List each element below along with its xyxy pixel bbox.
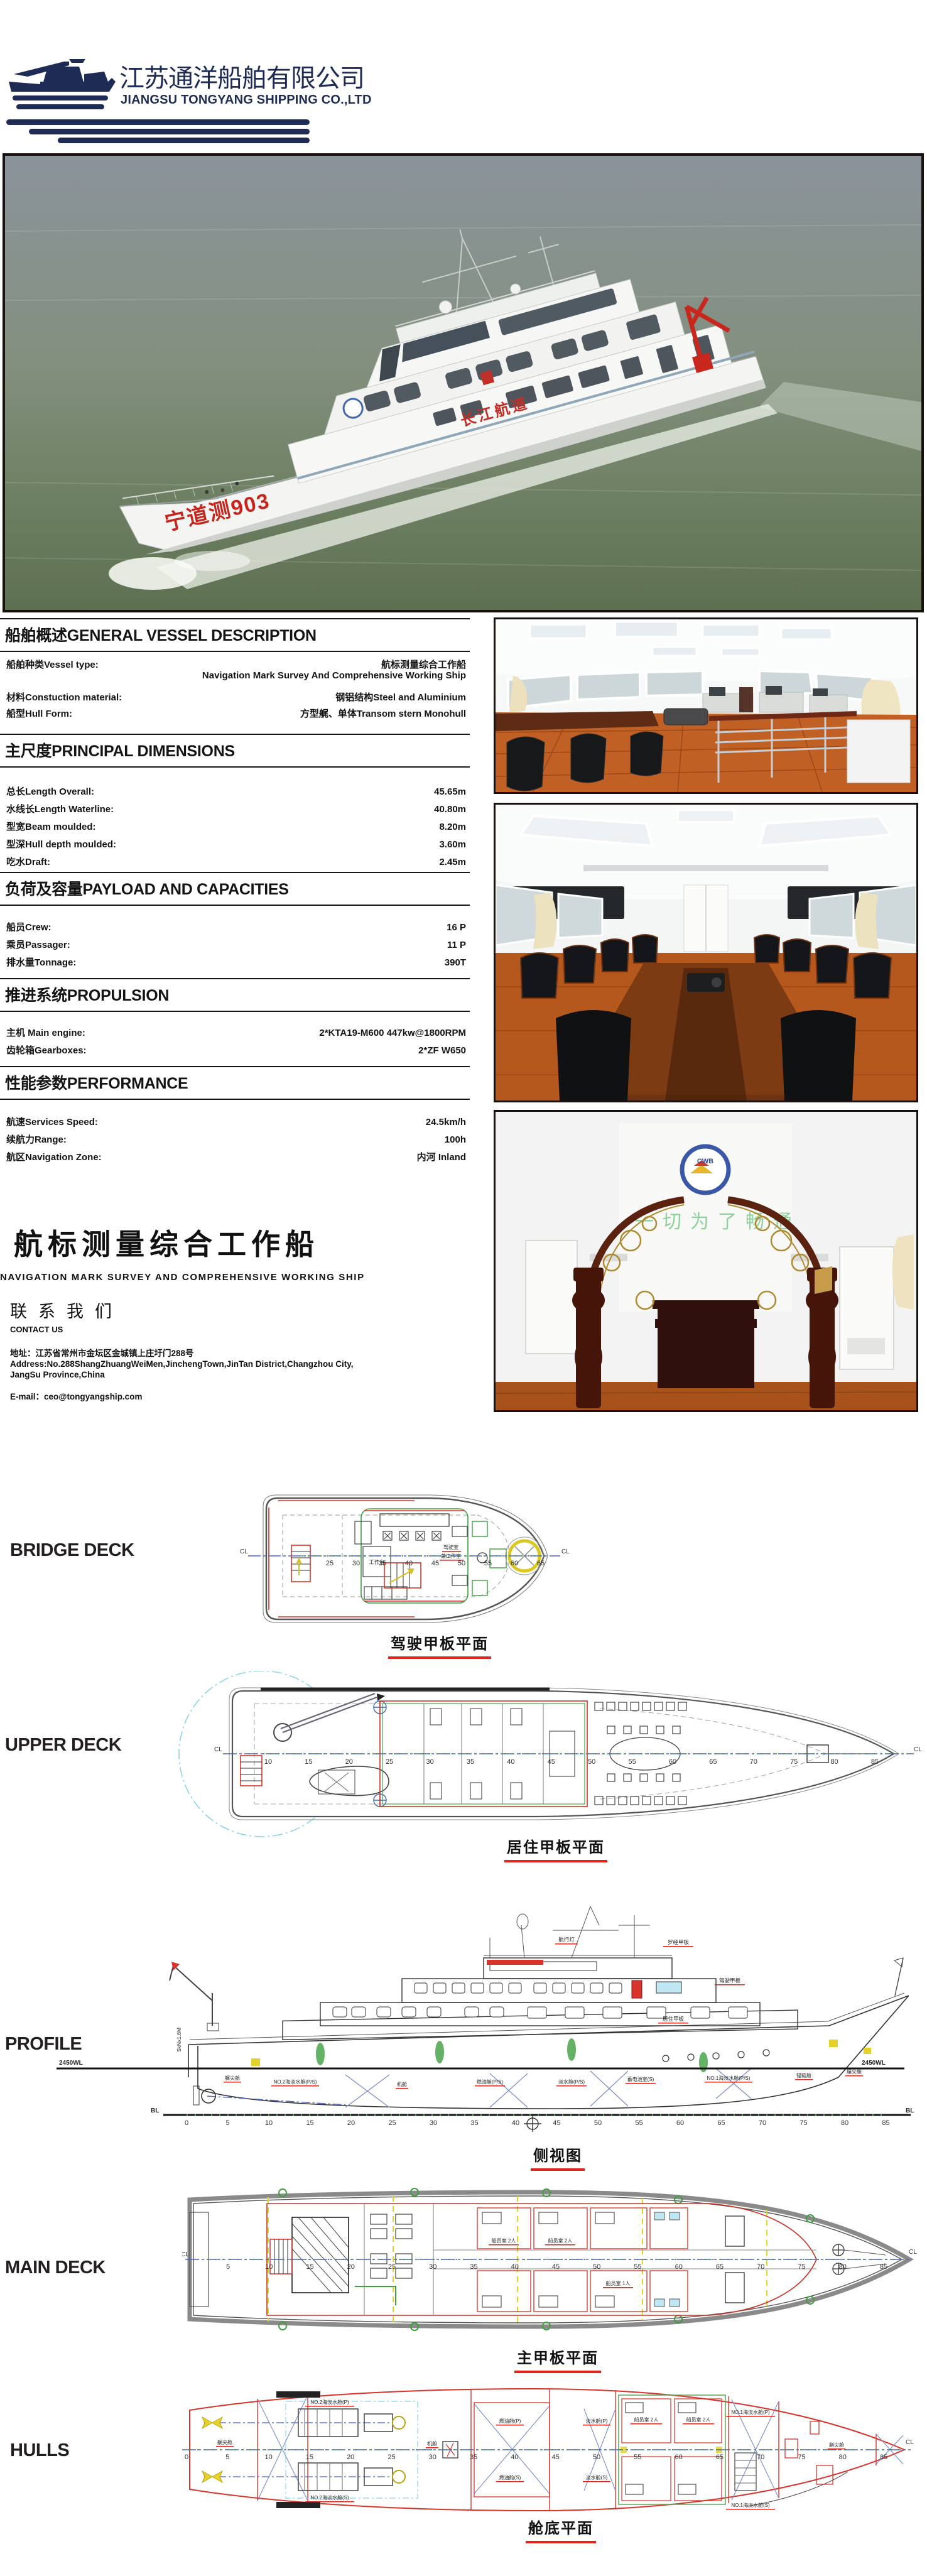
spec-value: 8.20m (439, 822, 466, 832)
contact-email[interactable]: E-mail：ceo@tongyangship.com (10, 1391, 462, 1402)
section-title: 负荷及容量PAYLOAD AND CAPACITIES (0, 872, 470, 906)
svg-text:75: 75 (790, 1758, 798, 1766)
section-dimensions: 主尺度PRINCIPAL DIMENSIONS 总长Length Overall… (0, 734, 470, 867)
spec-row: 材料Constuction material: 钢铝结构Steel and Al… (0, 692, 470, 703)
svg-text:50: 50 (588, 1758, 595, 1766)
spec-row: 航区Navigation Zone:内河 Inland (0, 1152, 470, 1163)
section-title: 船舶概述GENERAL VESSEL DESCRIPTION (0, 618, 470, 652)
svg-text:25: 25 (388, 2454, 395, 2461)
svg-text:85: 85 (880, 2454, 887, 2461)
spec-value: 40.80m (434, 804, 466, 815)
spec-label: 船员Crew: (6, 922, 51, 933)
svg-text:55: 55 (634, 2454, 641, 2461)
company-name-en: JIANGSU TONGYANG SHIPPING CO.,LTD (121, 93, 372, 107)
svg-text:70: 70 (757, 2263, 764, 2271)
hulls-frame-scale: 0510152025303540455055606570758085 (185, 2454, 887, 2461)
svg-text:30: 30 (429, 2263, 436, 2271)
svg-text:40: 40 (512, 2119, 519, 2127)
spec-row: 主机 Main engine:2*KTA19-M600 447kw@1800RP… (0, 1028, 470, 1038)
svg-text:50: 50 (594, 2119, 602, 2127)
spec-value: 2*ZF W650 (418, 1045, 466, 1056)
crane-capacity-label: 5kNx1.6M (176, 2028, 182, 2052)
svg-text:45: 45 (431, 1560, 439, 1567)
svg-text:15: 15 (305, 1758, 312, 1766)
spec-row: 船员Crew:16 P (0, 922, 470, 933)
spec-label: 总长Length Overall: (6, 786, 94, 797)
baseline-label-right: BL (906, 2107, 914, 2114)
spec-row: 船型Hull Form: 方型艉、单体Transom stern Monohul… (0, 709, 470, 719)
section-title: 推进系统PROPULSION (0, 978, 470, 1012)
waterline-label-right: 2450WL (862, 2060, 886, 2067)
contact-heading-cn: 联系我们 (10, 1298, 462, 1322)
spec-row: 齿轮箱Gearboxes:2*ZF W650 (0, 1045, 470, 1056)
svg-text:NO.2海淡水舱(P): NO.2海淡水舱(P) (310, 2399, 349, 2405)
svg-text:15: 15 (306, 2119, 313, 2127)
svg-text:75: 75 (798, 2263, 805, 2271)
svg-text:NO.2海淡水舱(S): NO.2海淡水舱(S) (310, 2494, 349, 2501)
cl-label-left: CL (182, 2251, 189, 2258)
svg-text:65: 65 (717, 2119, 725, 2127)
svg-text:75: 75 (798, 2454, 805, 2461)
main-deck-caption: 主甲板平面 (479, 2345, 636, 2373)
svg-text:NO.1海淡水舱(P/S): NO.1海淡水舱(P/S) (707, 2075, 751, 2081)
svg-text:锚链舱: 锚链舱 (796, 2072, 811, 2079)
spec-label: 排水量Tonnage: (6, 957, 76, 968)
spec-row: 排水量Tonnage:390T (0, 957, 470, 968)
svg-text:燃油舱(P/S): 燃油舱(P/S) (477, 2079, 504, 2085)
svg-text:5: 5 (226, 2263, 230, 2271)
spec-value: 2.45m (439, 857, 466, 867)
svg-text:NO.2海淡水舱(P/S): NO.2海淡水舱(P/S) (274, 2079, 317, 2085)
svg-text:30: 30 (352, 1560, 360, 1567)
svg-text:10: 10 (265, 2119, 273, 2127)
wave-bar-3 (58, 138, 310, 143)
svg-text:30: 30 (429, 2454, 436, 2461)
spec-row: 续航力Range:100h (0, 1134, 470, 1145)
bridge-deck-label: BRIDGE DECK (10, 1540, 134, 1561)
section-general: 船舶概述GENERAL VESSEL DESCRIPTION 船舶种类Vesse… (0, 618, 470, 719)
section-propulsion: 推进系统PROPULSION 主机 Main engine:2*KTA19-M6… (0, 978, 470, 1056)
svg-text:10: 10 (265, 2263, 273, 2271)
spec-value: 100h (445, 1134, 466, 1145)
spec-value: 内河 Inland (417, 1152, 466, 1163)
spec-value: 2*KTA19-M600 447kw@1800RPM (319, 1028, 466, 1038)
svg-text:35: 35 (379, 1560, 386, 1567)
spec-label: 续航力Range: (6, 1134, 67, 1145)
ship-type-title-cn: 航标测量综合工作船 (0, 1222, 333, 1263)
svg-text:50: 50 (593, 2263, 600, 2271)
main-room-label: 船员室 2人 (492, 2237, 516, 2244)
svg-text:50: 50 (458, 1560, 465, 1567)
svg-text:35: 35 (470, 2263, 477, 2271)
svg-text:60: 60 (675, 2454, 682, 2461)
spec-row: 水线长Length Waterline:40.80m (0, 804, 470, 815)
upper-deck-caption: 居住甲板平面 (477, 1835, 634, 1862)
svg-text:85: 85 (871, 1758, 879, 1766)
svg-text:20: 20 (347, 2263, 355, 2271)
spec-value: 11 P (447, 940, 466, 950)
spec-value: 方型艉、单体Transom stern Monohull (300, 709, 466, 719)
contact-address-cn: 地址：江苏省常州市金坛区金城镇上庄圩门288号 (10, 1348, 462, 1359)
spec-row: 船舶种类Vessel type: 航标测量综合工作船 Navigation Ma… (0, 660, 470, 681)
main-deck-label: MAIN DECK (5, 2258, 106, 2278)
ship-logo-icon (9, 57, 116, 122)
spec-row: 吃水Draft:2.45m (0, 857, 470, 867)
spec-value: 16 P (447, 922, 466, 933)
conference-room-photo (494, 803, 918, 1102)
spec-label: 材料Constuction material: (6, 692, 122, 703)
section-payload: 负荷及容量PAYLOAD AND CAPACITIES 船员Crew:16 P … (0, 872, 470, 968)
main-deck-plan: 船员室 2人 船员室 2人 船员室 1人 CL CL 5101520253035… (182, 2180, 917, 2368)
svg-text:85: 85 (882, 2119, 889, 2127)
spec-label: 乘员Passager: (6, 940, 70, 950)
spec-row: 总长Length Overall:45.65m (0, 786, 470, 797)
svg-text:15: 15 (306, 2263, 313, 2271)
spec-value: 3.60m (439, 839, 466, 850)
svg-text:5: 5 (225, 2454, 229, 2461)
svg-text:淡水舱(P/S): 淡水舱(P/S) (558, 2079, 585, 2085)
spec-row: 乘员Passager:11 P (0, 940, 470, 950)
spec-label: 型宽Beam moulded: (6, 822, 96, 832)
svg-text:70: 70 (750, 1758, 757, 1766)
contact-address-en2: JangSu Province,China (10, 1369, 462, 1380)
spec-label: 船舶种类Vessel type: (6, 660, 99, 670)
cl-label-left: CL (214, 1746, 222, 1753)
spec-label: 齿轮箱Gearboxes: (6, 1045, 87, 1056)
profile-compartment-labels: 艉尖舱 NO.2海淡水舱(P/S) 机舱 燃油舱(P/S) 淡水舱(P/S) 蓄… (224, 2068, 863, 2089)
spec-value: 钢铝结构Steel and Aluminium (335, 692, 466, 703)
spec-label: 水线长Length Waterline: (6, 804, 114, 815)
svg-text:艉尖舱: 艉尖舱 (217, 2439, 232, 2445)
svg-text:55: 55 (634, 2263, 641, 2271)
svg-text:30: 30 (426, 1758, 433, 1766)
svg-text:30: 30 (430, 2119, 437, 2127)
svg-text:80: 80 (839, 2454, 847, 2461)
svg-text:35: 35 (470, 2454, 477, 2461)
spec-value: 24.5km/h (426, 1117, 466, 1128)
svg-text:35: 35 (470, 2119, 478, 2127)
baseline-label-left: BL (151, 2107, 159, 2114)
svg-text:65: 65 (709, 1758, 717, 1766)
section-performance: 性能参数PERFORMANCE 航速Services Speed:24.5km/… (0, 1066, 470, 1163)
svg-text:燃油舱(P): 燃油舱(P) (499, 2418, 521, 2424)
svg-text:80: 80 (830, 1758, 838, 1766)
main-ship-photo: 宁道测903 长江航道 (3, 153, 924, 612)
cwb-badge-text: CWB (697, 1158, 713, 1165)
wheelhouse-interior-photo (494, 617, 918, 794)
svg-text:5: 5 (225, 2119, 229, 2127)
spec-label: 航速Services Speed: (6, 1117, 98, 1128)
spec-value: 45.65m (434, 786, 466, 797)
company-logo: 江苏通洋船舶有限公司 JIANGSU TONGYANG SHIPPING CO.… (0, 54, 477, 148)
svg-text:机舱: 机舱 (397, 2081, 407, 2087)
svg-text:40: 40 (405, 1560, 413, 1567)
svg-text:居住甲板: 居住甲板 (663, 2016, 685, 2022)
svg-text:80: 80 (839, 2263, 847, 2271)
svg-text:20: 20 (347, 2454, 354, 2461)
cl-label-right: CL (906, 2439, 914, 2446)
upper-deck-plan: CL CL 10152025303540455055606570758085 (160, 1671, 926, 1859)
svg-text:55: 55 (484, 1560, 492, 1567)
svg-text:70: 70 (759, 2119, 766, 2127)
spec-label: 航区Navigation Zone: (6, 1152, 102, 1163)
svg-text:75: 75 (800, 2119, 807, 2127)
waterline-label-left: 2450WL (59, 2060, 83, 2067)
bridge-deck-caption: 驾驶甲板平面 (374, 1631, 506, 1659)
contact-address-en1: Address:No.288ShangZhuangWeiMen,Jincheng… (10, 1359, 462, 1369)
svg-text:0: 0 (185, 2119, 188, 2127)
svg-text:淡水舱(P): 淡水舱(P) (586, 2418, 608, 2424)
upper-deck-label: UPPER DECK (5, 1735, 121, 1756)
cl-label-right: CL (561, 1548, 570, 1555)
svg-text:40: 40 (511, 2263, 519, 2271)
main-room-label: 船员室 1人 (606, 2280, 631, 2286)
contact-heading-en: CONTACT US (10, 1325, 462, 1334)
svg-text:45: 45 (552, 2454, 560, 2461)
svg-text:淡水舱(S): 淡水舱(S) (586, 2474, 608, 2481)
svg-text:45: 45 (553, 2119, 560, 2127)
svg-text:25: 25 (326, 1560, 333, 1567)
svg-text:45: 45 (548, 1758, 555, 1766)
svg-text:25: 25 (386, 1758, 393, 1766)
svg-text:艏尖舱: 艏尖舱 (847, 2068, 862, 2075)
main-frame-scale: 510152025303540455055606570758085 (226, 2263, 887, 2271)
svg-text:60: 60 (675, 2263, 683, 2271)
svg-text:65: 65 (716, 2454, 724, 2461)
spec-label: 吃水Draft: (6, 857, 50, 867)
svg-text:NO.1海淡水舱(P): NO.1海淡水舱(P) (731, 2409, 770, 2415)
hulls-caption: 舱底平面 (482, 2516, 639, 2543)
profile-caption: 侧视图 (479, 2143, 636, 2171)
wave-bar-2 (29, 129, 310, 134)
svg-text:50: 50 (593, 2454, 600, 2461)
profile-drawing: 5kNx1.6M 2450WL 2450WL BL BL 05101520253… (50, 1900, 917, 2133)
svg-text:0: 0 (185, 2454, 188, 2461)
svg-text:燃油舱(S): 燃油舱(S) (499, 2474, 521, 2481)
svg-text:蓄电池室(S): 蓄电池室(S) (627, 2076, 654, 2082)
svg-text:25: 25 (388, 2263, 396, 2271)
spec-value: 390T (445, 957, 466, 968)
spec-label: 船型Hull Form: (6, 709, 72, 719)
section-title: 性能参数PERFORMANCE (0, 1066, 470, 1100)
svg-text:20: 20 (345, 1758, 353, 1766)
spec-label: 主机 Main engine: (6, 1028, 85, 1038)
svg-text:航行灯: 航行灯 (558, 1937, 575, 1943)
svg-text:70: 70 (757, 2454, 764, 2461)
spec-row: 型深Hull depth moulded:3.60m (0, 839, 470, 850)
svg-text:艏尖舱: 艏尖舱 (829, 2442, 844, 2448)
svg-text:55: 55 (628, 1758, 636, 1766)
svg-text:20: 20 (347, 2119, 355, 2127)
svg-text:驾驶甲板: 驾驶甲板 (719, 1977, 741, 1984)
svg-text:65: 65 (716, 2263, 724, 2271)
svg-text:80: 80 (841, 2119, 848, 2127)
svg-text:65: 65 (537, 1560, 545, 1567)
spec-label: 型深Hull depth moulded: (6, 839, 116, 850)
main-room-label: 船员室 2人 (548, 2237, 573, 2244)
svg-text:船员室 2人: 船员室 2人 (634, 2416, 659, 2423)
svg-text:船员室 2人: 船员室 2人 (686, 2416, 711, 2423)
cl-label-right: CL (914, 1746, 922, 1753)
section-title: 主尺度PRINCIPAL DIMENSIONS (0, 734, 470, 768)
svg-text:35: 35 (467, 1758, 474, 1766)
svg-text:45: 45 (552, 2263, 560, 2271)
svg-text:艉尖舱: 艉尖舱 (225, 2075, 240, 2081)
staircase-photo: CWB 一切为了畅通 (494, 1110, 918, 1412)
svg-text:40: 40 (511, 2454, 518, 2461)
svg-text:10: 10 (264, 1758, 272, 1766)
svg-text:85: 85 (880, 2263, 887, 2271)
svg-text:10: 10 (264, 2454, 272, 2461)
svg-text:60: 60 (669, 1758, 676, 1766)
company-name-cn: 江苏通洋船舶有限公司 (119, 58, 364, 94)
bridge-frame-scale: 253035404550556065 (326, 1560, 545, 1567)
svg-text:25: 25 (388, 2119, 396, 2127)
spec-row: 航速Services Speed:24.5km/h (0, 1117, 470, 1128)
wave-bar-1 (6, 119, 310, 125)
spec-value: 航标测量综合工作船 Navigation Mark Survey And Com… (202, 660, 466, 681)
cl-label-right: CL (909, 2249, 917, 2256)
svg-text:40: 40 (507, 1758, 514, 1766)
bridge-room-label2a: 驾驶室 (443, 1544, 458, 1550)
svg-text:55: 55 (635, 2119, 642, 2127)
svg-text:NO.1海淡水舱(S): NO.1海淡水舱(S) (731, 2502, 770, 2508)
svg-text:60: 60 (511, 1560, 518, 1567)
svg-text:15: 15 (306, 2454, 313, 2461)
ship-type-title-en: NAVIGATION MARK SURVEY AND COMPREHENSIVE… (0, 1272, 333, 1283)
spec-row: 型宽Beam moulded:8.20m (0, 822, 470, 832)
svg-text:机舱: 机舱 (427, 2440, 437, 2447)
svg-text:60: 60 (676, 2119, 684, 2127)
cl-label-left: CL (240, 1548, 248, 1555)
svg-text:罗经甲板: 罗经甲板 (668, 1939, 690, 1945)
hulls-label: HULLS (10, 2440, 69, 2461)
